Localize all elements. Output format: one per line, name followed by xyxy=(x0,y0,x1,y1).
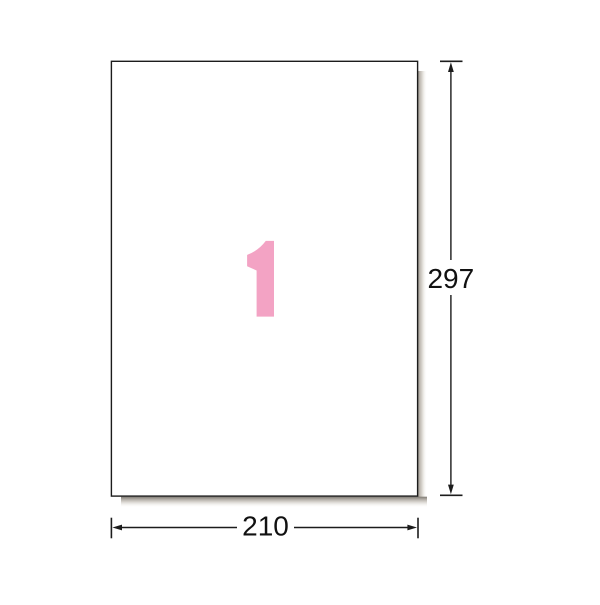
svg-text:297: 297 xyxy=(427,263,474,294)
svg-text:210: 210 xyxy=(242,511,289,542)
